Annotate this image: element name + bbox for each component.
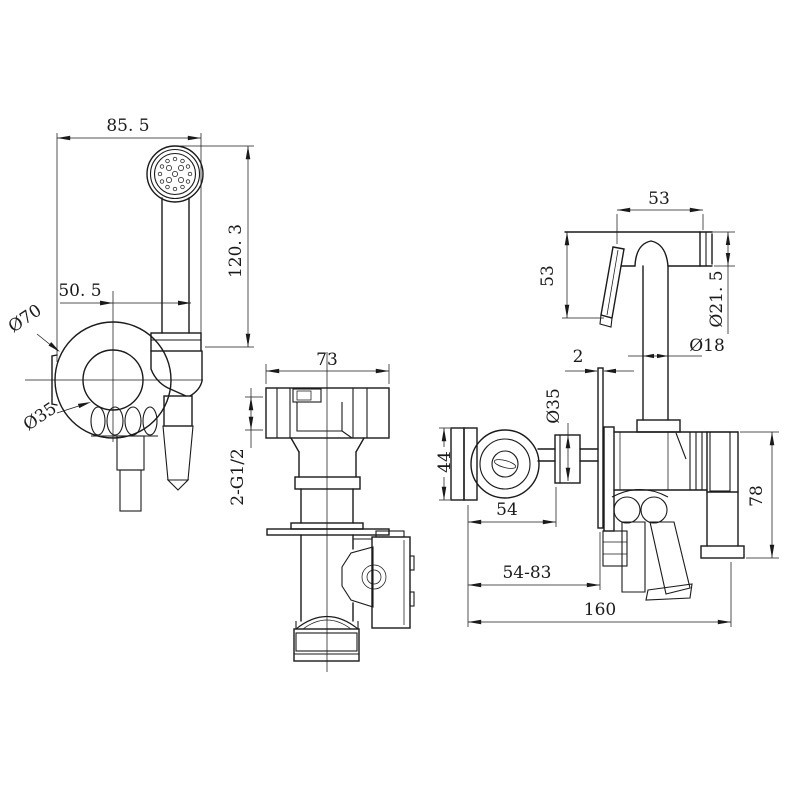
dim-tee-threads: 2-G1/2 [228,388,263,506]
screw-slot [493,458,516,470]
tee-bar [266,388,389,438]
assembly-side-view: 53 53 Ø21. 5 Ø18 2 [435,189,779,627]
technical-drawing-page: 85. 5 120. 3 50. 5 Ø70 Ø35 [0,0,800,800]
dim-label-head-length: 53 [648,189,670,209]
sprayer-handle-side [637,266,680,432]
dim-head-dia: Ø21. 5 [707,232,735,334]
inlet-adapter [603,531,627,566]
holder-hook-side [600,247,624,327]
dim-label-front-offset: 50. 5 [58,281,101,301]
dim-valve-height: 78 [740,432,779,558]
dim-label-overall-depth: 160 [584,600,616,620]
dim-label-front-height: 120. 3 [226,224,246,278]
mounting-screw [163,426,193,490]
dim-head-length: 53 [617,189,703,244]
wall-flange-plate-tee [267,529,389,535]
dim-head-height: 53 [538,232,604,318]
dim-front-width: 85. 5 [57,116,201,362]
braided-hose-left [622,522,645,592]
dim-label-escutcheon-dia: Ø35 [544,388,564,424]
dim-holder-height: 44 [435,428,455,500]
hose-connections [603,490,692,601]
dim-label-head-height: 53 [538,265,558,287]
hose-flare [646,584,692,600]
knob-end-cap [701,546,744,558]
control-knob-bottom [294,617,359,662]
valve-body-side [604,427,744,558]
technical-drawing-canvas: 85. 5 120. 3 50. 5 Ø70 Ø35 [0,0,800,800]
dim-wall-plate-thickness: 2 [565,347,634,373]
dim-label-head-dia: Ø21. 5 [707,270,727,327]
dim-label-handle-dia: Ø18 [689,336,725,356]
hex-nut-left [614,497,640,523]
dim-tee-width: 73 [266,350,389,384]
dim-front-offset: 50. 5 [58,281,191,305]
dim-label-holder-offset: 54 [496,500,518,520]
wall-plate-side [598,368,603,528]
dim-label-wall-plate-thickness: 2 [573,347,584,367]
dim-depth-range: 54-83 [468,532,600,590]
dim-label-depth-range: 54-83 [502,563,551,583]
ball-joint [342,547,386,607]
dim-front-height: 120. 3 [180,146,254,347]
dim-label-tee-threads: 2-G1/2 [228,448,248,506]
front-view: 85. 5 120. 3 50. 5 Ø70 Ø35 [5,116,254,511]
holder-block-side [372,531,414,628]
escutcheon-cover [555,435,580,483]
dim-label-holder-height: 44 [435,451,455,473]
sprayer-head-front [147,146,203,202]
wall-bracket-side [451,428,539,500]
dim-label-valve-height: 78 [747,485,767,507]
valve-flange [604,427,614,531]
nozzle-holes [158,157,192,191]
hex-nut-right [641,497,667,523]
dim-holder-offset: 54 [468,487,556,627]
dim-flange-outer-dia: Ø70 [5,301,60,352]
tee-valve-view: 73 2-G1/2 [228,350,414,672]
braided-hose-right [650,522,690,594]
dim-label-tee-width: 73 [316,350,338,370]
dim-label-front-width: 85. 5 [106,116,149,136]
sprayer-handle-front [151,198,201,351]
dome-bump [635,241,668,266]
inlet-fitting-front [91,407,158,511]
dim-label-flange-outer-dia: Ø70 [5,301,46,337]
sprayer-head-side [565,232,712,266]
knurl-band-tee [296,633,357,651]
knurl-band-side [710,432,730,491]
tee-stem [267,438,389,621]
